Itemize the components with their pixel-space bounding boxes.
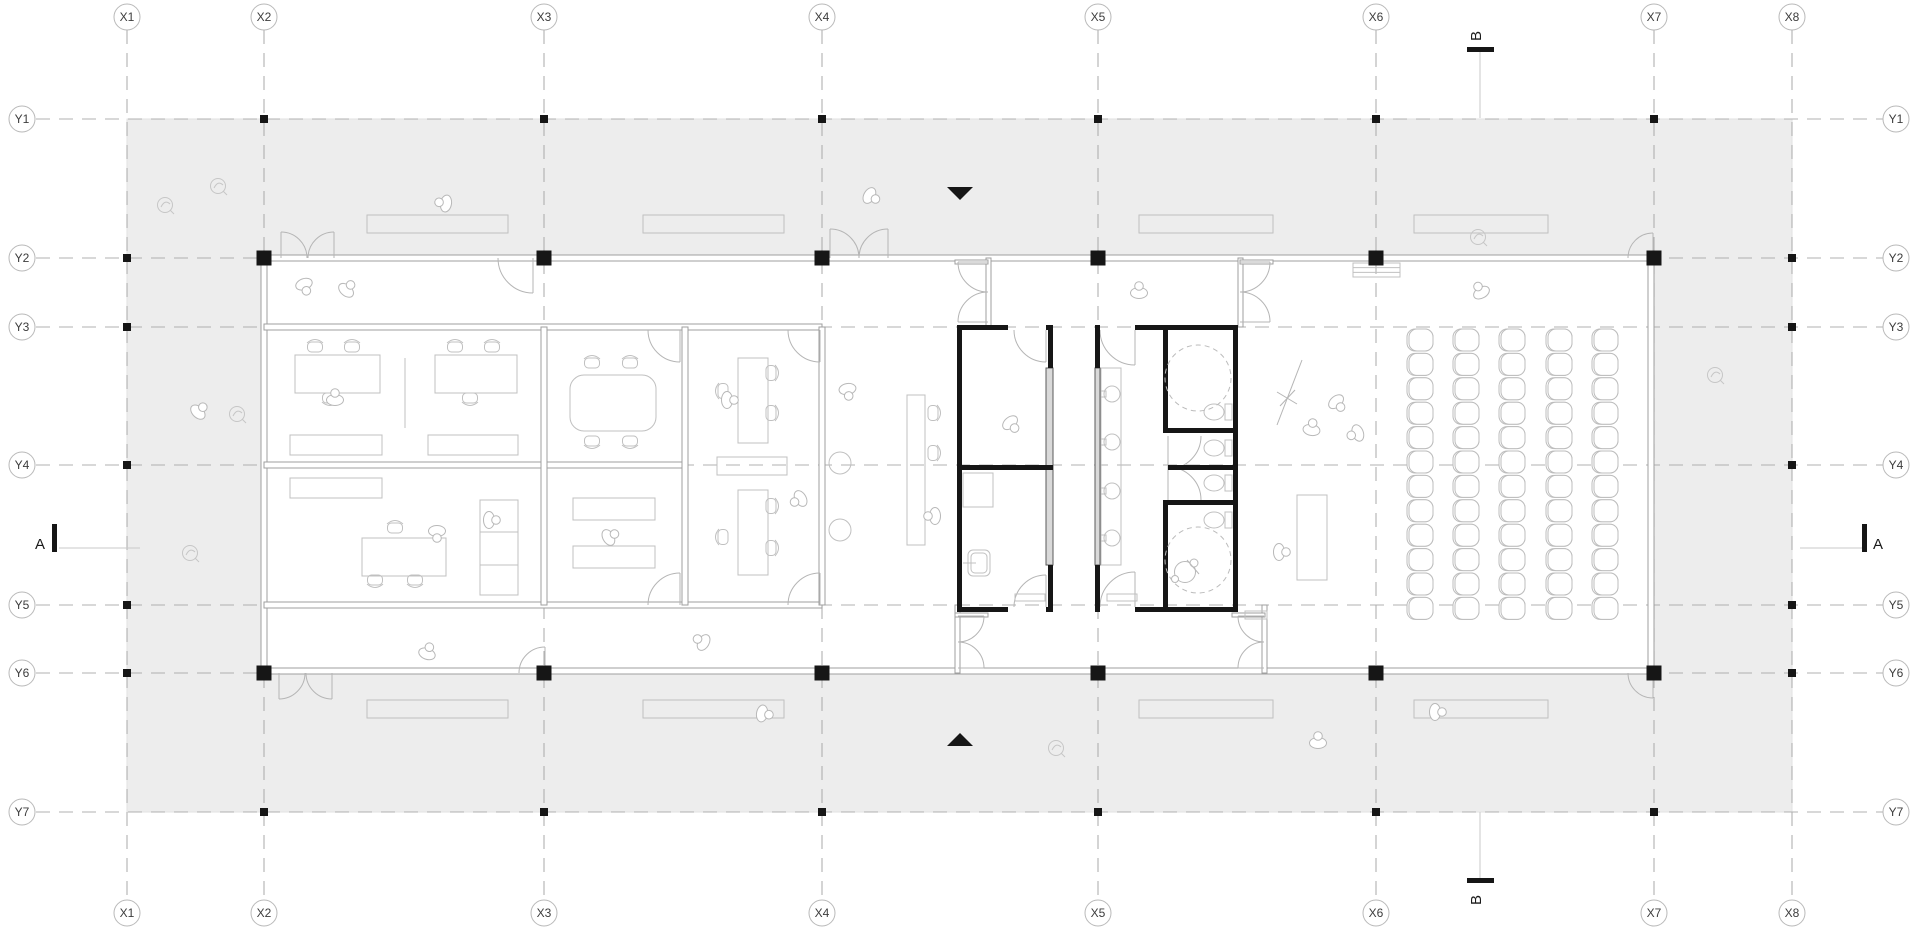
column-marker-small xyxy=(1788,601,1796,609)
auditorium-seat xyxy=(1499,353,1525,375)
grid-label: Y1 xyxy=(1889,112,1904,126)
column-marker-large xyxy=(1369,666,1384,681)
partition-wall xyxy=(819,327,825,605)
grid-bubble-X2: X2 xyxy=(251,4,277,30)
auditorium-seat xyxy=(1592,597,1618,619)
auditorium-seat xyxy=(1592,524,1618,546)
partition-wall xyxy=(1648,258,1654,673)
column-marker-small xyxy=(1094,115,1102,123)
core-wall xyxy=(1095,565,1100,612)
grid-label: X2 xyxy=(257,906,272,920)
partition-wall xyxy=(541,327,547,605)
grid-bubble-X8: X8 xyxy=(1779,900,1805,926)
auditorium-seat xyxy=(1453,427,1479,449)
column-marker-small xyxy=(123,669,131,677)
grid-label: X8 xyxy=(1785,906,1800,920)
column-marker-small xyxy=(1094,808,1102,816)
auditorium-seat xyxy=(1407,475,1433,497)
grid-bubble-X2: X2 xyxy=(251,900,277,926)
grid-bubble-Y2: Y2 xyxy=(1883,245,1909,271)
grid-label: X1 xyxy=(120,906,135,920)
grid-label: X6 xyxy=(1369,906,1384,920)
column-marker-small xyxy=(123,323,131,331)
grid-bubble-X4: X4 xyxy=(809,4,835,30)
grid-bubble-X1: X1 xyxy=(114,900,140,926)
column-marker-large xyxy=(1091,251,1106,266)
auditorium-seat xyxy=(1546,597,1572,619)
grid-bubble-X6: X6 xyxy=(1363,4,1389,30)
auditorium-seat xyxy=(1592,475,1618,497)
auditorium-seat xyxy=(1499,427,1525,449)
core-wall xyxy=(1168,465,1238,470)
auditorium-seat xyxy=(1546,524,1572,546)
floor-plan-canvas: AABBX1X1X2X2X3X3X4X4X5X5X6X6X7X7X8X8Y1Y1… xyxy=(0,0,1920,937)
column-marker-small xyxy=(123,254,131,262)
column-marker-large xyxy=(815,251,830,266)
grid-bubble-X5: X5 xyxy=(1085,4,1111,30)
grid-bubble-X7: X7 xyxy=(1641,4,1667,30)
auditorium-seat xyxy=(1592,451,1618,473)
grid-label: Y2 xyxy=(15,251,30,265)
auditorium-seat xyxy=(1407,597,1433,619)
grid-bubble-Y5: Y5 xyxy=(9,592,35,618)
core-wall xyxy=(957,465,1053,470)
grid-bubble-Y6: Y6 xyxy=(9,660,35,686)
column-marker-small xyxy=(540,115,548,123)
column-marker-small xyxy=(1788,254,1796,262)
auditorium-seat xyxy=(1453,329,1479,351)
grid-bubble-X8: X8 xyxy=(1779,4,1805,30)
grid-label: X6 xyxy=(1369,10,1384,24)
grid-label: X5 xyxy=(1091,10,1106,24)
auditorium-seat xyxy=(1546,475,1572,497)
grid-label: Y3 xyxy=(15,320,30,334)
auditorium-seat xyxy=(1407,549,1433,571)
grid-bubble-X3: X3 xyxy=(531,4,557,30)
grid-bubble-X1: X1 xyxy=(114,4,140,30)
column-marker-large xyxy=(1091,666,1106,681)
grid-label: X7 xyxy=(1647,906,1662,920)
grid-bubble-Y7: Y7 xyxy=(1883,799,1909,825)
column-marker-small xyxy=(540,808,548,816)
auditorium-seat xyxy=(1546,427,1572,449)
auditorium-seat xyxy=(1546,451,1572,473)
core-wall xyxy=(1163,500,1238,505)
column-marker-large xyxy=(537,251,552,266)
column-marker-small xyxy=(123,461,131,469)
column-marker-small xyxy=(1788,669,1796,677)
section-label: B xyxy=(1468,31,1485,41)
auditorium-seat xyxy=(1499,597,1525,619)
section-marker-a-1: A xyxy=(1800,524,1883,553)
partition-wall xyxy=(682,327,688,605)
section-marker-b-2: B xyxy=(1467,31,1494,118)
grid-label: X7 xyxy=(1647,10,1662,24)
column-marker-small xyxy=(818,808,826,816)
column-marker-small xyxy=(1650,808,1658,816)
auditorium-seat xyxy=(1499,549,1525,571)
auditorium-seat xyxy=(1407,524,1433,546)
auditorium-seat xyxy=(1453,597,1479,619)
auditorium-seat xyxy=(1592,329,1618,351)
column-marker-small xyxy=(1372,808,1380,816)
column-marker-large xyxy=(815,666,830,681)
grid-label: Y5 xyxy=(15,598,30,612)
column-marker-small xyxy=(1650,115,1658,123)
column-marker-large xyxy=(1647,666,1662,681)
grid-bubble-X6: X6 xyxy=(1363,900,1389,926)
grid-label: Y1 xyxy=(15,112,30,126)
auditorium-seat xyxy=(1453,524,1479,546)
auditorium-seat xyxy=(1453,402,1479,424)
auditorium-seat xyxy=(1546,549,1572,571)
column-marker-small xyxy=(1372,115,1380,123)
grid-label: Y5 xyxy=(1889,598,1904,612)
column-marker-small xyxy=(260,115,268,123)
auditorium-seat xyxy=(1499,451,1525,473)
column-marker-small xyxy=(260,808,268,816)
grid-label: Y2 xyxy=(1889,251,1904,265)
grid-bubble-Y4: Y4 xyxy=(9,452,35,478)
auditorium-seat xyxy=(1453,378,1479,400)
auditorium-seat xyxy=(1546,500,1572,522)
auditorium-seat xyxy=(1453,451,1479,473)
grid-bubble-X7: X7 xyxy=(1641,900,1667,926)
auditorium-seat xyxy=(1499,402,1525,424)
auditorium-seat xyxy=(1546,402,1572,424)
grid-label: Y6 xyxy=(15,666,30,680)
auditorium-seat xyxy=(1407,451,1433,473)
column-marker-small xyxy=(123,601,131,609)
grid-bubble-Y4: Y4 xyxy=(1883,452,1909,478)
auditorium-seat xyxy=(1592,402,1618,424)
column-marker-small xyxy=(818,115,826,123)
grid-label: X4 xyxy=(815,906,830,920)
grid-label: X2 xyxy=(257,10,272,24)
grid-bubble-X4: X4 xyxy=(809,900,835,926)
partition-wall xyxy=(264,462,685,468)
section-marker-a-0: A xyxy=(35,524,140,553)
core-wall xyxy=(1135,607,1238,612)
auditorium-seat xyxy=(1546,378,1572,400)
auditorium-seat xyxy=(1453,500,1479,522)
auditorium-seat xyxy=(1453,353,1479,375)
auditorium-seat xyxy=(1499,475,1525,497)
auditorium-seat xyxy=(1592,378,1618,400)
grid-label: X1 xyxy=(120,10,135,24)
auditorium-seat xyxy=(1407,353,1433,375)
auditorium-seat xyxy=(1592,573,1618,595)
core-wall xyxy=(1163,505,1168,612)
core-wall xyxy=(957,325,1008,330)
grid-bubble-Y1: Y1 xyxy=(9,106,35,132)
auditorium-seat xyxy=(1407,500,1433,522)
auditorium-seat xyxy=(1453,549,1479,571)
grid-label: Y4 xyxy=(15,458,30,472)
core-wall xyxy=(1135,325,1238,330)
grid-label: X4 xyxy=(815,10,830,24)
floor-plan-viewport: AABBX1X1X2X2X3X3X4X4X5X5X6X6X7X7X8X8Y1Y1… xyxy=(0,0,1920,937)
core-wall xyxy=(1163,428,1238,433)
auditorium-seat xyxy=(1407,427,1433,449)
auditorium-seat xyxy=(1499,573,1525,595)
grid-label: Y4 xyxy=(1889,458,1904,472)
column-marker-small xyxy=(1788,323,1796,331)
grid-label: Y7 xyxy=(1889,805,1904,819)
auditorium-seat xyxy=(1407,402,1433,424)
auditorium-seat xyxy=(1546,573,1572,595)
column-marker-small xyxy=(1788,461,1796,469)
grid-label: X3 xyxy=(537,10,552,24)
auditorium-seat xyxy=(1407,378,1433,400)
grid-bubble-Y5: Y5 xyxy=(1883,592,1909,618)
section-label: B xyxy=(1468,895,1485,905)
auditorium-seat xyxy=(1453,475,1479,497)
auditorium-seat xyxy=(1499,329,1525,351)
grid-label: X3 xyxy=(537,906,552,920)
auditorium-seat xyxy=(1592,500,1618,522)
core-wall xyxy=(1095,325,1100,368)
section-label: A xyxy=(35,536,45,553)
grid-label: X5 xyxy=(1091,906,1106,920)
core-wall xyxy=(1048,325,1053,368)
auditorium-seat xyxy=(1453,573,1479,595)
auditorium-seat xyxy=(1546,329,1572,351)
column-marker-large xyxy=(1369,251,1384,266)
grid-label: X8 xyxy=(1785,10,1800,24)
auditorium-seat xyxy=(1407,329,1433,351)
grid-bubble-Y2: Y2 xyxy=(9,245,35,271)
auditorium-seat xyxy=(1499,378,1525,400)
auditorium-seat xyxy=(1407,573,1433,595)
grid-bubble-X3: X3 xyxy=(531,900,557,926)
grid-label: Y7 xyxy=(15,805,30,819)
section-marker-b-3: B xyxy=(1467,812,1494,905)
grid-label: Y6 xyxy=(1889,666,1904,680)
grid-bubble-X5: X5 xyxy=(1085,900,1111,926)
grid-bubble-Y6: Y6 xyxy=(1883,660,1909,686)
grid-bubble-Y7: Y7 xyxy=(9,799,35,825)
column-marker-large xyxy=(537,666,552,681)
auditorium-seat xyxy=(1592,549,1618,571)
auditorium-seat xyxy=(1592,427,1618,449)
auditorium-seat xyxy=(1499,500,1525,522)
grid-label: Y3 xyxy=(1889,320,1904,334)
auditorium-seat xyxy=(1546,353,1572,375)
grid-bubble-Y3: Y3 xyxy=(1883,314,1909,340)
core-wall xyxy=(957,607,1008,612)
core-inner-wall xyxy=(1095,368,1100,565)
grid-bubble-Y1: Y1 xyxy=(1883,106,1909,132)
auditorium-seat xyxy=(1499,524,1525,546)
section-label: A xyxy=(1873,536,1883,553)
column-marker-large xyxy=(1647,251,1662,266)
column-marker-large xyxy=(257,251,272,266)
auditorium-seat xyxy=(1592,353,1618,375)
core-wall xyxy=(1048,565,1053,612)
grid-bubble-Y3: Y3 xyxy=(9,314,35,340)
column-marker-large xyxy=(257,666,272,681)
